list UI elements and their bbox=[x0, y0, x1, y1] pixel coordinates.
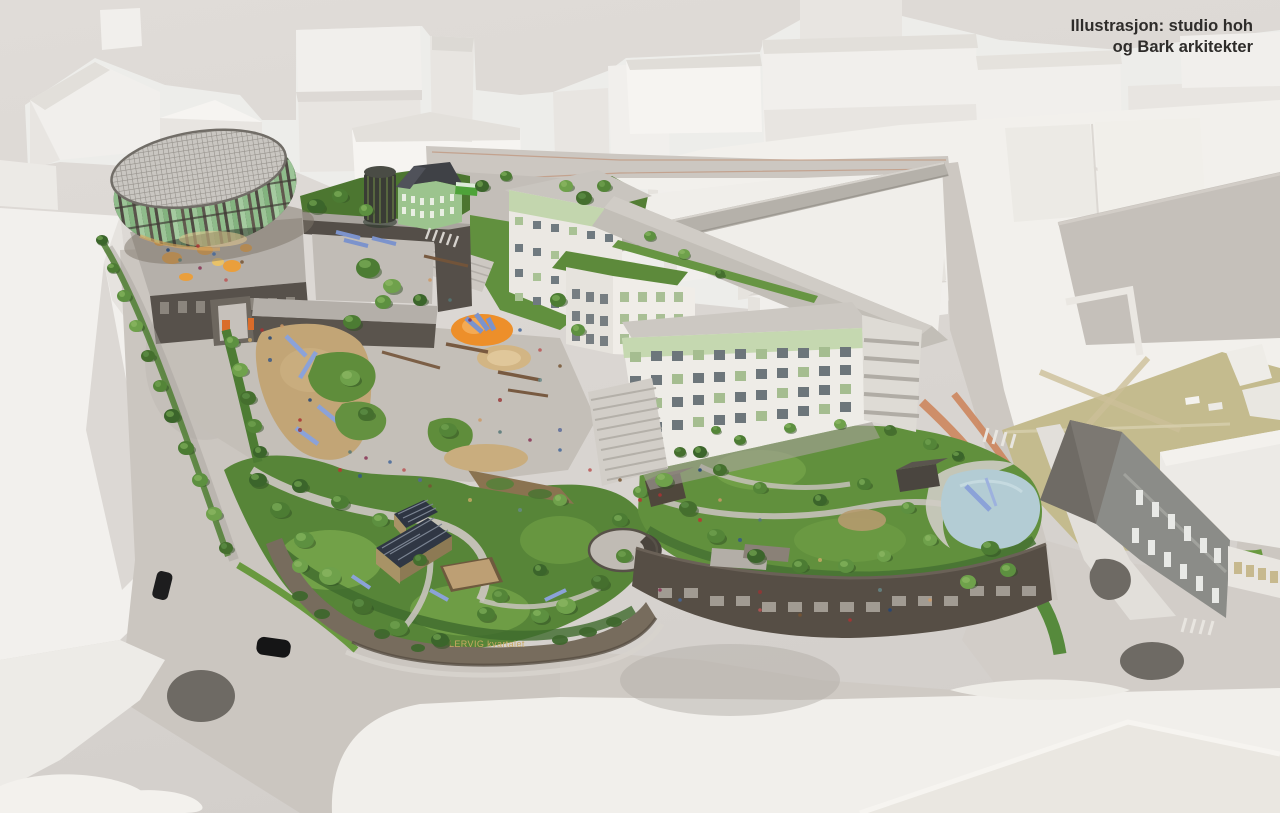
svg-text:og Bark arkitekter: og Bark arkitekter bbox=[1113, 38, 1254, 56]
svg-text:Illustrasjon: studio hoh: Illustrasjon: studio hoh bbox=[1071, 17, 1253, 35]
svg-text:LERVIG kvartalet: LERVIG kvartalet bbox=[449, 639, 525, 649]
